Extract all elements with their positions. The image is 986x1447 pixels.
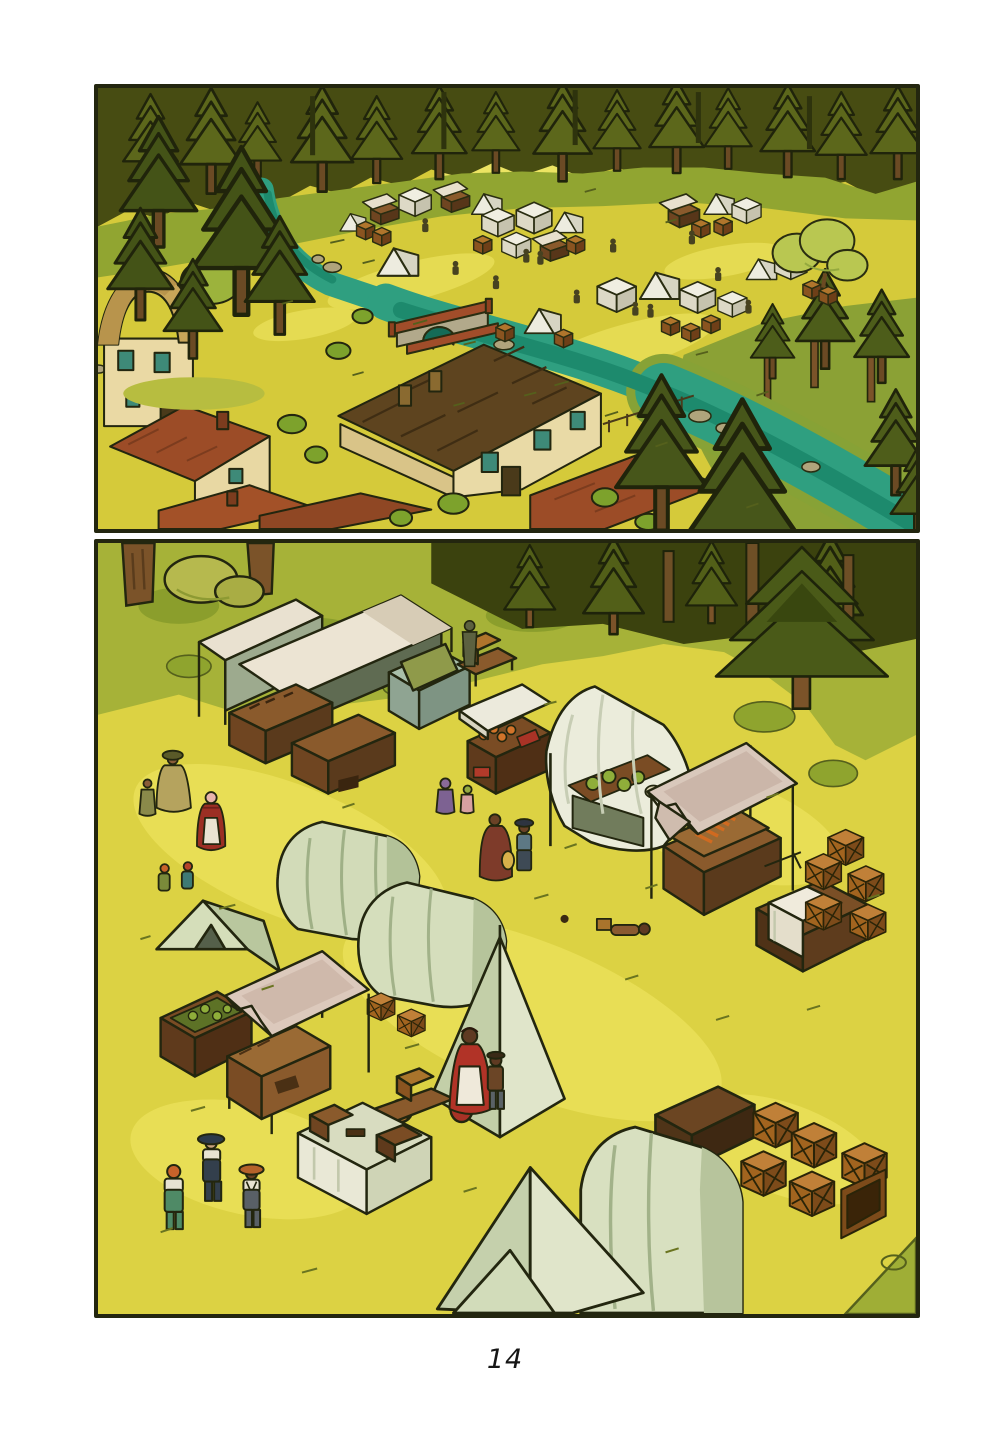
panel-bottom bbox=[94, 539, 920, 1318]
page-number: 14 bbox=[96, 1344, 914, 1375]
panel-top bbox=[94, 84, 920, 533]
panel-top-illustration bbox=[98, 88, 916, 529]
comic-page: 14 bbox=[0, 0, 986, 1447]
lone-figure bbox=[463, 621, 477, 666]
panel-bottom-illustration bbox=[98, 543, 916, 1314]
basket bbox=[561, 915, 569, 923]
boy bbox=[487, 1052, 504, 1109]
man-green-overalls bbox=[165, 1165, 183, 1229]
